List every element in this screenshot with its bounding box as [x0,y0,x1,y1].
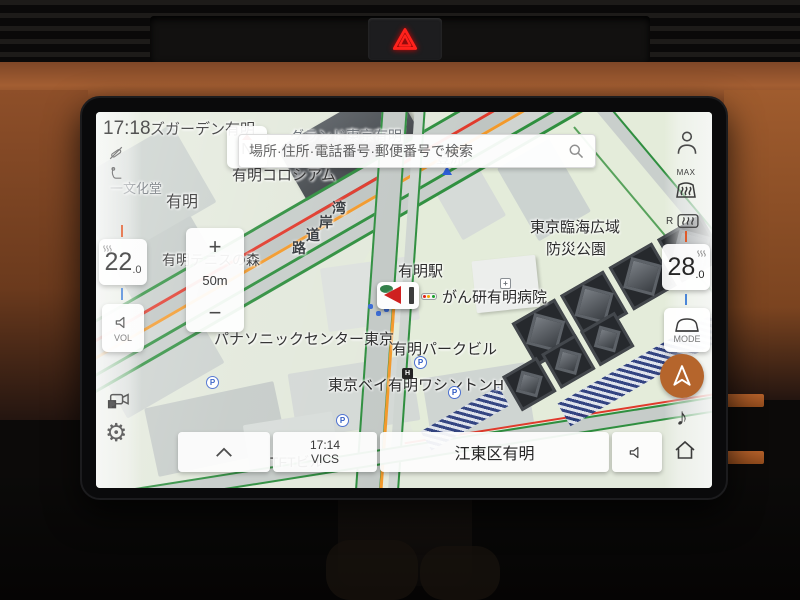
temp-slider-cold-tick [685,294,687,305]
driver-temp-decimal: .0 [132,264,141,276]
passenger-temp-value: 28 [668,255,696,280]
search-icon [567,142,585,160]
seat-icon [108,166,124,181]
hotel-poi-icon: H [402,368,413,379]
settings-gear-icon[interactable]: ⚙ [105,418,127,448]
passenger-temperature-button[interactable]: 28.0 [662,244,710,290]
search-bar[interactable] [238,134,596,168]
navigation-app-button[interactable] [660,354,704,398]
current-location-text: 江東区有明 [454,440,534,464]
hospital-poi-icon: + [500,278,511,289]
vehicle-arrow-icon [384,286,401,304]
leather-trim-right [724,90,800,400]
chevron-up-icon [214,447,234,458]
vics-label: VICS [311,452,339,466]
vics-time: 17:14 [310,438,340,452]
drive-mode-button[interactable]: MODE [664,308,710,352]
media-music-button[interactable]: ♪ [676,404,688,432]
rear-window-icon [676,212,700,230]
phone-disconnected-icon [107,145,125,161]
zoom-in-button[interactable]: + [209,236,222,258]
map-zoom-control: + 50m − [186,228,244,332]
home-icon [672,438,698,462]
parking-poi-icon: P [206,376,219,389]
profile-button[interactable] [674,128,700,158]
car-icon [673,316,701,334]
map-label: がん研有明病院 [442,286,547,307]
rear-label: R [666,216,673,227]
marker-detail [409,287,414,304]
passenger-temp-decimal: .0 [695,269,704,281]
driver-temperature-button[interactable]: 22.0 [99,239,147,285]
zoom-out-button[interactable]: − [209,302,222,324]
parking-poi-icon: P [414,356,427,369]
map-label: 有明駅 [398,260,443,281]
console-shape [420,546,500,600]
car-dashboard-photo: ズガーデン有明 グランド東京有明 有明コロシアム 有明 一文化堂 豊洲 東京臨海… [0,0,800,600]
parking-poi-icon: P [448,386,461,399]
road-name-char: 道 [306,225,320,245]
temp-slider-hot-tick [121,225,123,237]
parking-poi-icon: P [336,414,349,427]
mode-label: MODE [674,334,701,344]
map-label: 防災公園 [546,238,606,259]
road-name-char: 路 [292,238,306,258]
nav-arrow-icon [670,364,694,388]
clock: 17:18 [103,118,151,140]
map-label: 東京臨海広域 [530,216,620,237]
volume-label: VOL [114,333,132,343]
temp-slider-hot-tick [685,231,687,242]
bottom-status-bar: 17:14 VICS 江東区有明 [178,432,662,472]
road-name-char: 岸 [319,212,333,232]
current-location-bar: 江東区有明 [380,432,609,472]
map-label: 有明パークビル [392,338,497,359]
windshield-defrost-icon [672,177,700,203]
map-label: 東京ベイ有明ワシントンH [328,374,504,395]
vics-info[interactable]: 17:14 VICS [273,432,377,472]
infotainment-screen[interactable]: ズガーデン有明 グランド東京有明 有明コロシアム 有明 一文化堂 豊洲 東京臨海… [96,112,712,488]
leather-trim-left [0,90,88,420]
vehicle-position-marker [377,282,419,309]
max-label: MAX [677,168,696,177]
driver-temp-value: 22 [105,250,133,275]
map-scale-label: 50m [202,273,227,288]
parking-camera-button[interactable]: P [105,390,131,412]
mute-button[interactable] [612,432,662,472]
hazard-warning-icon [390,26,420,52]
road-name-char: 湾 [332,198,346,218]
rear-defrost-button[interactable]: R [666,212,700,230]
volume-button[interactable]: VOL [102,304,144,352]
home-button[interactable] [672,438,698,462]
collapse-bar-button[interactable] [178,432,270,472]
lot-mark [376,311,381,316]
temp-slider-cold-tick [121,288,123,300]
svg-text:P: P [110,400,115,409]
traffic-light-icon [421,293,437,300]
front-defrost-max-button[interactable]: MAX [672,168,700,203]
map-label: 有明 [166,188,198,212]
hazard-light-button[interactable] [368,18,442,60]
speaker-mute-icon [627,444,647,461]
search-input[interactable] [239,143,567,159]
console-shape [326,540,418,600]
lot-mark [368,304,373,309]
speaker-icon [113,314,133,331]
